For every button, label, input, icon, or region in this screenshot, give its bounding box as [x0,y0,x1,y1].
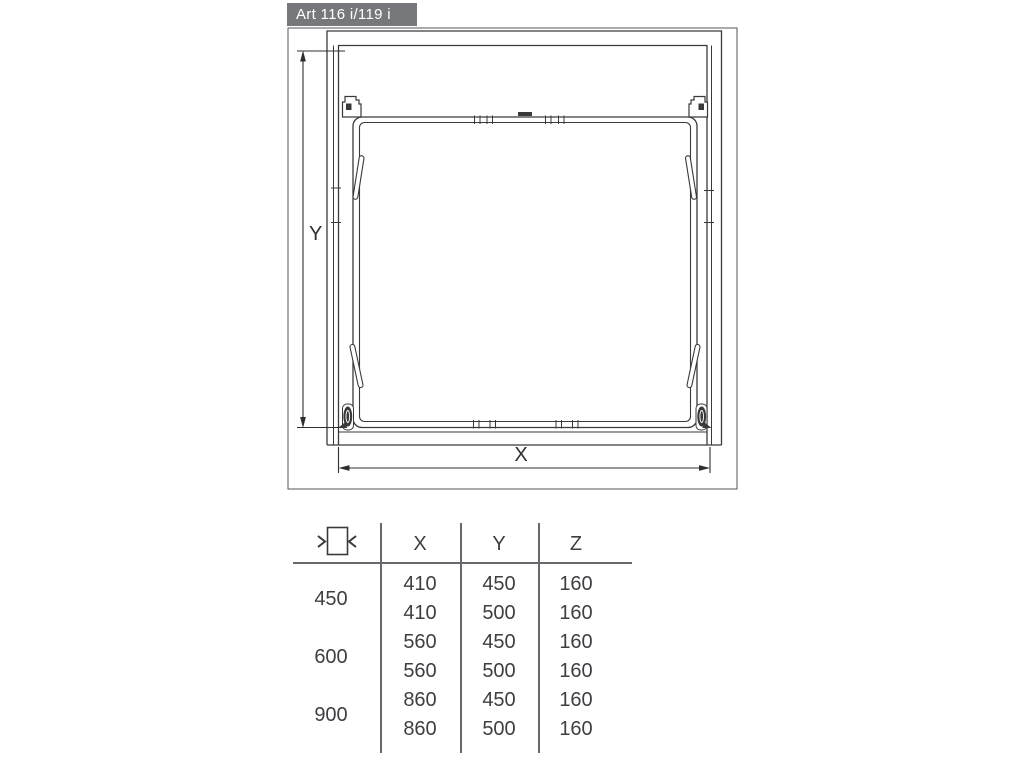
cell-y: 500 [460,715,538,744]
cabinet-outline [327,31,722,445]
cell-y: 500 [460,657,538,686]
group-label: 900 [293,686,369,744]
cell-z: 160 [538,628,614,657]
cell-z: 160 [538,570,614,599]
cell-y: 450 [460,628,538,657]
pullout-frame [353,116,697,429]
cell-x: 860 [380,715,460,744]
table-header-divider [293,562,632,564]
col-header-x: X [380,526,460,562]
group-label: 450 [293,570,369,628]
cell-y: 500 [460,599,538,628]
cell-x: 410 [380,599,460,628]
cell-x: 560 [380,628,460,657]
cabinet-width-icon [315,526,359,556]
bottom-rollers [338,404,712,430]
cell-z: 160 [538,599,614,628]
catalog-page: Art 116 i/119 i [0,0,1024,768]
cell-y: 450 [460,686,538,715]
cell-x: 860 [380,686,460,715]
cell-y: 450 [460,570,538,599]
cell-x: 410 [380,570,460,599]
cell-z: 160 [538,657,614,686]
dim-y-label: Y [309,223,322,245]
group-label: 600 [293,628,369,686]
cell-z: 160 [538,686,614,715]
frame-center-clip [518,112,532,116]
dimension-table: X Y Z 450 410 450 160 410 500 160 600 56… [293,520,638,760]
top-left-bracket-pin [346,104,352,111]
technical-drawing: Y X [0,0,1024,505]
cell-z: 160 [538,715,614,744]
support-arms [350,155,701,388]
dim-x-label: X [514,444,527,466]
col-header-y: Y [460,526,538,562]
cell-x: 560 [380,657,460,686]
top-right-bracket-pin [699,104,705,111]
col-header-z: Z [538,526,614,562]
